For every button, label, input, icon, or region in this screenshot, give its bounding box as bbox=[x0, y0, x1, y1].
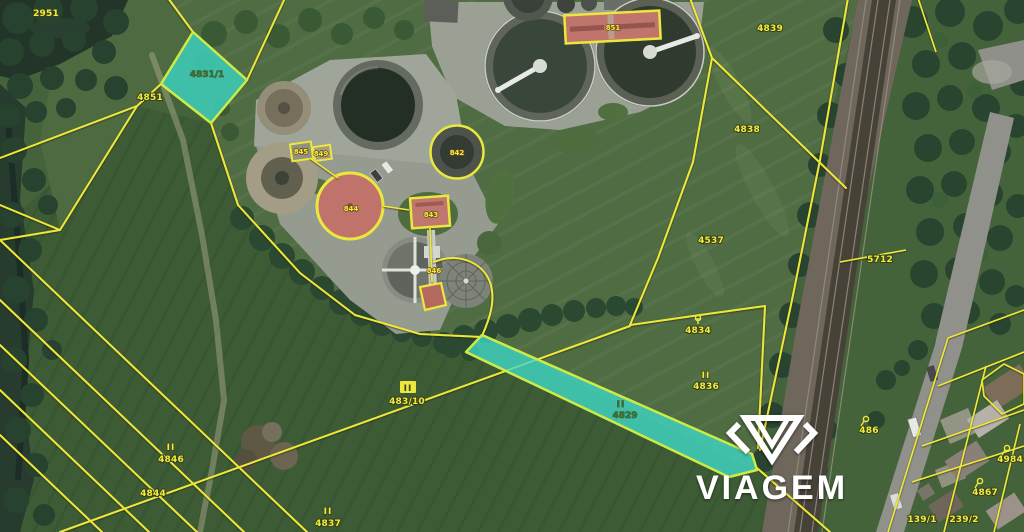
building-label-outbuilding: 846 bbox=[427, 267, 442, 275]
parcel-label-rail-east: 5712 bbox=[867, 255, 893, 265]
building-label-shed-b: 849 bbox=[314, 150, 329, 158]
meadow-marker: II bbox=[404, 384, 413, 394]
parcel-label-quad-highlight: 4831/1 bbox=[190, 70, 225, 80]
parcel-label-house-sw: 139/1 bbox=[907, 515, 936, 525]
parcel-label-house-ne: 4984 bbox=[997, 455, 1023, 465]
meadow-marker: II bbox=[702, 371, 711, 381]
building-label-ring-tank: 842 bbox=[450, 149, 465, 157]
building-label-digester: 844 bbox=[344, 205, 359, 213]
building-label-shed-a: 845 bbox=[294, 148, 309, 156]
parcel-label-strip-highlight: 4829 bbox=[612, 411, 637, 421]
dark-water-tank bbox=[333, 60, 423, 150]
parcel-label-center-meadow: 483/10 bbox=[389, 397, 425, 407]
parcel-label-grove: 4834 bbox=[685, 326, 711, 336]
parcel-label-west-strip: 4844 bbox=[140, 489, 166, 499]
parcel-label-west-meadow: 4846 bbox=[158, 455, 184, 465]
aerial-map: 2951 4851 4831/1 4839 4838 4537 5712 483… bbox=[0, 0, 1024, 532]
parcel-label-field-mid: 4838 bbox=[734, 125, 760, 135]
building-label-hall: 851 bbox=[606, 24, 621, 32]
meadow-marker: II bbox=[324, 507, 333, 517]
parcel-label-east-meadow: 4836 bbox=[693, 382, 719, 392]
meadow-marker: II bbox=[617, 400, 626, 410]
lattice-tank bbox=[439, 254, 493, 308]
parcel-label-south-meadow: 4837 bbox=[315, 519, 341, 529]
parcel-label-tree-lane: 486 bbox=[859, 426, 878, 436]
round-tank-tan bbox=[257, 81, 311, 135]
parcel-label-house-mid: 4867 bbox=[972, 488, 998, 498]
highlighted-outbuilding bbox=[420, 283, 446, 310]
meadow-marker: II bbox=[167, 443, 176, 453]
parcel-label-west: 4851 bbox=[137, 93, 163, 103]
plant-building bbox=[423, 0, 458, 23]
building-label-pump-house: 843 bbox=[424, 211, 439, 219]
parcel-label-field-top: 4839 bbox=[757, 24, 783, 34]
parcel-label-tl-corner: 2951 bbox=[33, 9, 59, 19]
parcel-label-house-s: 239/2 bbox=[949, 515, 978, 525]
map-viewport[interactable]: 2951 4851 4831/1 4839 4838 4537 5712 483… bbox=[0, 0, 1024, 532]
parcel-label-field-low: 4537 bbox=[698, 236, 724, 246]
brand-name: VIAGEM bbox=[696, 469, 848, 507]
